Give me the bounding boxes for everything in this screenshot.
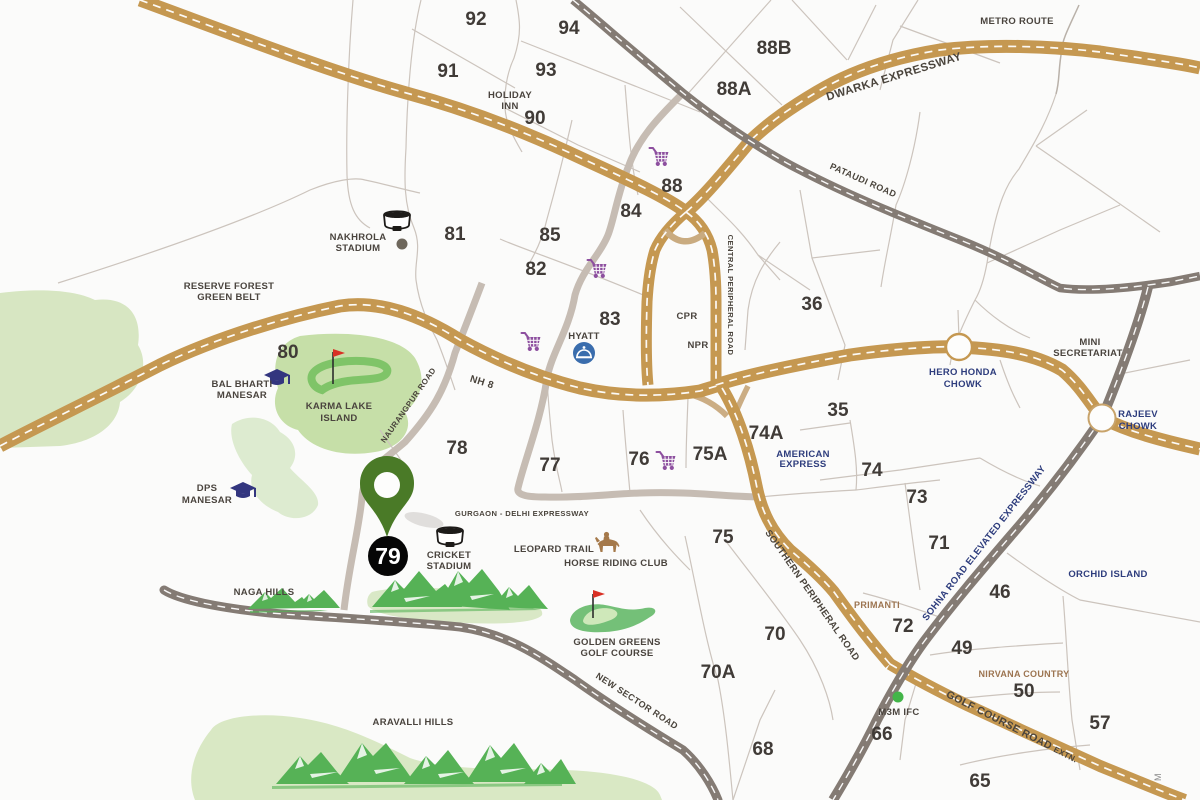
svg-text:RAJEEV: RAJEEV	[1118, 409, 1158, 420]
svg-text:79: 79	[375, 543, 401, 569]
svg-text:36: 36	[801, 294, 822, 315]
svg-text:LEOPARD TRAIL: LEOPARD TRAIL	[514, 544, 594, 555]
svg-text:GOLDEN GREENS: GOLDEN GREENS	[573, 637, 660, 648]
svg-text:HORSE RIDING CLUB: HORSE RIDING CLUB	[564, 558, 668, 569]
svg-text:80: 80	[277, 342, 298, 363]
svg-text:74: 74	[861, 460, 883, 481]
svg-text:BAL BHARTI: BAL BHARTI	[212, 379, 273, 390]
svg-text:ARAVALLI HILLS: ARAVALLI HILLS	[373, 717, 454, 728]
svg-text:CHOWK: CHOWK	[1119, 421, 1157, 432]
svg-text:CRICKET: CRICKET	[427, 550, 471, 561]
svg-text:82: 82	[525, 259, 546, 280]
svg-text:68: 68	[752, 739, 773, 760]
svg-text:90: 90	[524, 108, 545, 129]
svg-text:MANESAR: MANESAR	[182, 495, 232, 506]
svg-text:GOLF COURSE: GOLF COURSE	[581, 648, 654, 659]
svg-text:94: 94	[558, 18, 580, 39]
svg-text:KARMA LAKE: KARMA LAKE	[306, 401, 373, 412]
svg-text:GURGAON - DELHI EXPRESSWAY: GURGAON - DELHI EXPRESSWAY	[455, 509, 589, 518]
svg-text:INN: INN	[501, 101, 518, 112]
svg-text:78: 78	[446, 438, 467, 459]
svg-text:EXPRESS: EXPRESS	[780, 459, 827, 470]
svg-text:77: 77	[539, 455, 560, 476]
svg-text:70: 70	[764, 624, 785, 645]
svg-text:57: 57	[1089, 713, 1110, 734]
svg-text:65: 65	[969, 771, 991, 792]
svg-text:METRO ROUTE: METRO ROUTE	[980, 16, 1054, 27]
svg-text:66: 66	[871, 724, 892, 745]
svg-text:HYATT: HYATT	[568, 331, 600, 342]
svg-text:STADIUM: STADIUM	[336, 243, 381, 254]
svg-text:NAGA HILLS: NAGA HILLS	[234, 587, 295, 598]
svg-text:93: 93	[535, 60, 556, 81]
svg-text:91: 91	[437, 61, 459, 82]
svg-text:74A: 74A	[749, 423, 784, 444]
svg-text:76: 76	[628, 449, 649, 470]
svg-text:70A: 70A	[701, 662, 736, 683]
svg-text:NIRVANA COUNTRY: NIRVANA COUNTRY	[978, 669, 1069, 679]
svg-text:ISLAND: ISLAND	[320, 413, 357, 424]
svg-text:M: M	[1153, 774, 1163, 782]
svg-text:M3M IFC: M3M IFC	[878, 707, 919, 718]
svg-text:MANESAR: MANESAR	[217, 390, 267, 401]
svg-text:49: 49	[951, 638, 972, 659]
svg-text:CHOWK: CHOWK	[944, 379, 982, 390]
svg-text:35: 35	[827, 400, 849, 421]
svg-text:71: 71	[928, 533, 950, 554]
svg-text:84: 84	[620, 201, 642, 222]
svg-text:GREEN BELT: GREEN BELT	[197, 292, 261, 303]
svg-text:PRIMANTI: PRIMANTI	[854, 600, 900, 610]
svg-text:46: 46	[989, 582, 1010, 603]
svg-text:72: 72	[892, 616, 913, 637]
svg-text:SECRETARIAT: SECRETARIAT	[1053, 348, 1122, 359]
svg-text:73: 73	[906, 487, 927, 508]
svg-text:HERO HONDA: HERO HONDA	[929, 367, 997, 378]
svg-text:STADIUM: STADIUM	[427, 561, 472, 572]
svg-text:88B: 88B	[757, 38, 792, 59]
svg-text:83: 83	[599, 309, 620, 330]
svg-text:92: 92	[465, 9, 486, 30]
svg-text:75: 75	[712, 527, 734, 548]
svg-text:NAKHROLA: NAKHROLA	[330, 232, 387, 243]
svg-text:NPR: NPR	[688, 340, 709, 351]
svg-text:DPS: DPS	[197, 483, 217, 494]
svg-text:MINI: MINI	[1079, 337, 1100, 348]
svg-text:50: 50	[1013, 681, 1034, 702]
svg-text:75A: 75A	[693, 444, 728, 465]
svg-text:85: 85	[539, 225, 561, 246]
svg-text:RESERVE FOREST: RESERVE FOREST	[184, 281, 275, 292]
svg-text:CENTRAL PERIPHERAL ROAD: CENTRAL PERIPHERAL ROAD	[726, 235, 735, 356]
svg-text:81: 81	[444, 224, 466, 245]
svg-text:88: 88	[661, 176, 682, 197]
svg-text:ORCHID ISLAND: ORCHID ISLAND	[1068, 569, 1147, 580]
svg-text:HOLIDAY: HOLIDAY	[488, 90, 532, 101]
svg-text:88A: 88A	[717, 79, 752, 100]
svg-text:CPR: CPR	[677, 311, 698, 322]
